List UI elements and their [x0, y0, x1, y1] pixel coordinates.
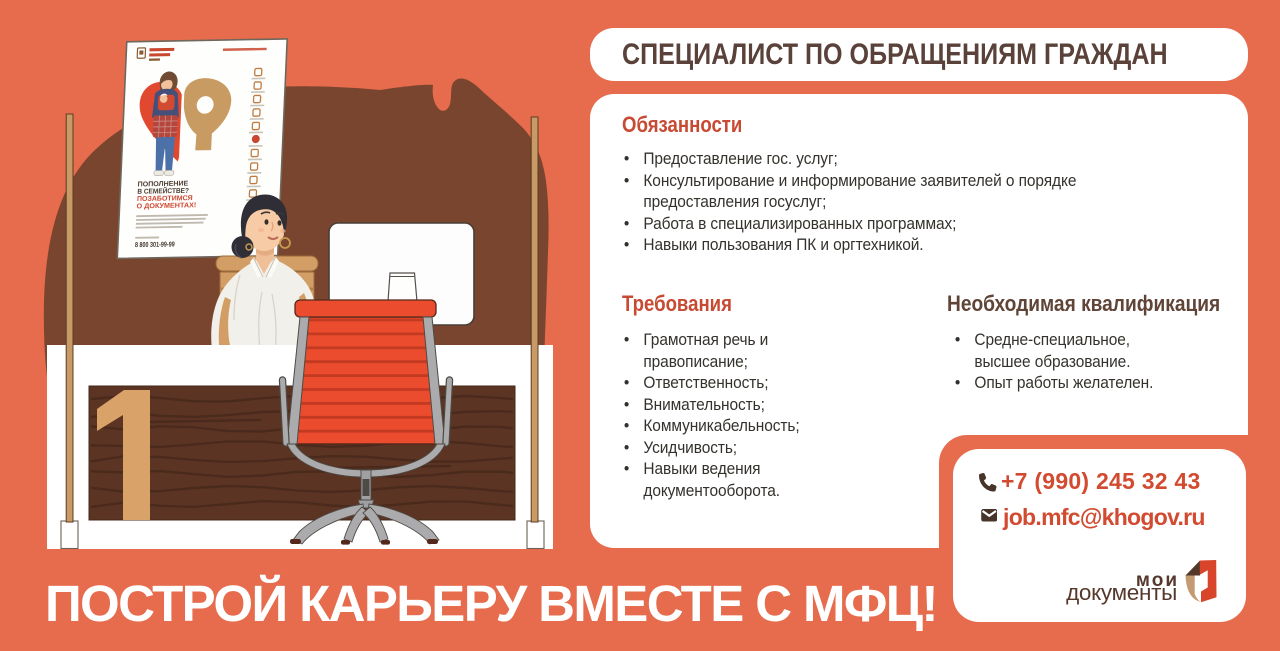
- svg-text:О ДОКУМЕНТАХ!: О ДОКУМЕНТАХ!: [136, 202, 196, 210]
- svg-text:8 800 301-99-99: 8 800 301-99-99: [135, 241, 175, 249]
